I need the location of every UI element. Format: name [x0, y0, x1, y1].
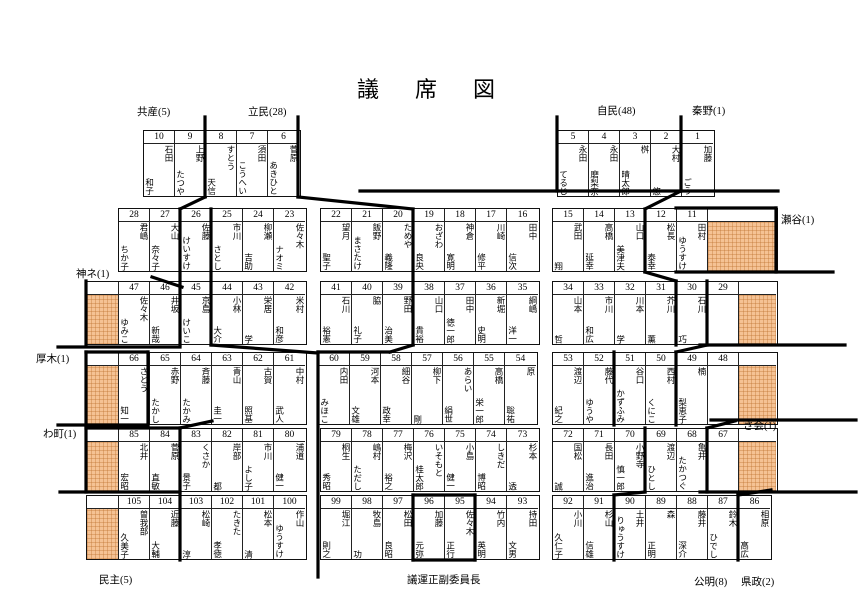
- seat-58: 58細谷政幸: [381, 353, 412, 424]
- seat-number: 30: [677, 282, 707, 295]
- member-name: 君嶋ちか子: [119, 222, 149, 271]
- seat-15: 15武田翔: [553, 209, 584, 271]
- given-name: 孝徳: [213, 541, 222, 558]
- seat-64: 64斉藤たかみ: [181, 353, 212, 424]
- given-name: 天信: [207, 178, 216, 195]
- surname: 神倉: [465, 223, 474, 240]
- surname: 杉山: [604, 510, 613, 527]
- surname: 大山: [170, 223, 179, 240]
- member-name: 野田治美: [383, 295, 413, 344]
- surname: 土井: [635, 510, 644, 527]
- member-name: 菅原直敏: [150, 442, 180, 491]
- seat-number: 37: [445, 282, 475, 295]
- seat-68: 68亀井たかつぐ: [677, 429, 708, 491]
- given-name: 史明: [477, 326, 486, 343]
- seat-59: 59河本文雄: [350, 353, 381, 424]
- member-name: 小川久仁子: [553, 509, 583, 559]
- label-giun: 議運正副委員長: [407, 572, 481, 587]
- member-name: 山口美津夫: [615, 222, 645, 271]
- seat-8: 8すとう天信: [206, 131, 237, 196]
- seat-number: 81: [243, 429, 273, 442]
- seat-number: 44: [212, 282, 242, 295]
- member-name: 市川よし子: [243, 442, 273, 491]
- surname: 杉本: [528, 443, 537, 460]
- label-kanane: 神ネ(1): [76, 266, 109, 281]
- member-name: おざわ良央: [414, 222, 444, 271]
- member-name: 山口貴裕: [414, 295, 444, 344]
- seat-number: 5: [558, 131, 588, 144]
- given-name: ごう: [683, 178, 692, 195]
- member-name: 杉本透: [507, 442, 538, 491]
- seat-number: 83: [181, 429, 211, 442]
- label-minshu: 民主(5): [99, 572, 132, 587]
- given-name: 美津夫: [616, 245, 625, 271]
- seat-78: 78嶋村ただし: [352, 429, 383, 491]
- seat-number: [739, 353, 776, 366]
- given-name: 徳一郎: [446, 318, 455, 344]
- seat-number: 69: [646, 429, 676, 442]
- seat-block-r5L: 85北井宏昭84菅原直敏83くさか景子82岸部都81市川よし子80浦道健一: [86, 428, 307, 492]
- given-name: 清: [244, 550, 253, 559]
- given-name: たかつぐ: [678, 456, 687, 490]
- member-name: 森正明: [646, 509, 676, 559]
- seat-89: 89森正明: [646, 496, 677, 559]
- member-name: 渡辺紀之: [553, 366, 583, 424]
- given-name: 礼子: [353, 326, 362, 343]
- seat-block-r1L: 10石田和子9上野たつや8すとう天信7須田こうへい6菅原あきひと: [143, 130, 301, 197]
- seat-102: 102たきた孝徳: [212, 496, 243, 559]
- seat-86: 86相原高広: [739, 496, 770, 559]
- seat-number: 85: [119, 429, 149, 442]
- surname: 野田: [403, 296, 412, 313]
- surname: 上野: [195, 145, 204, 162]
- seat-block-r2M: 22望月聖子21飯野まさたけ20ためや義隆19おざわ良央18神倉寛明17川崎修平…: [320, 208, 540, 272]
- surname: 藤井: [697, 510, 706, 527]
- seat-block-r6R: 92小川久仁子91杉山信雄90土井りゅうすけ89森正明88藤井深介87鈴木ひでし…: [552, 495, 772, 560]
- member-name: 青山圭一: [212, 366, 242, 424]
- seat-number: 33: [584, 282, 614, 295]
- hatched-area: [739, 442, 776, 491]
- surname: 永田: [609, 145, 618, 162]
- seat-number: 40: [352, 282, 382, 295]
- given-name: りゅうすけ: [616, 516, 625, 559]
- surname: しきだ: [496, 443, 505, 469]
- surname: 須田: [257, 145, 266, 162]
- hatched-area: [708, 222, 776, 271]
- surname: 石川: [341, 296, 350, 313]
- seat-95: 95佐々木正行: [445, 496, 476, 559]
- surname: 山本: [573, 296, 582, 313]
- label-sakai: さ会(1): [743, 418, 776, 433]
- surname: 浦道: [295, 443, 304, 460]
- seat-34: 34山本哲: [553, 282, 584, 344]
- label-kensei: 県政(2): [741, 574, 774, 589]
- vacant-cell: [87, 496, 119, 559]
- seat-60: 60内田みほこ: [319, 353, 350, 424]
- given-name: 健一: [275, 473, 284, 490]
- seat-number: 84: [150, 429, 180, 442]
- surname: 岸部: [232, 443, 241, 460]
- member-name: たきた孝徳: [212, 509, 242, 559]
- given-name: 晴太郎: [621, 170, 630, 196]
- seat-33: 33市川和広: [584, 282, 615, 344]
- given-name: ゆうや: [585, 398, 594, 424]
- seat-number: 53: [553, 353, 583, 366]
- seat-number: 98: [352, 496, 382, 509]
- member-name: [708, 442, 738, 491]
- given-name: 学: [616, 335, 625, 344]
- vacant-cell: [87, 353, 119, 424]
- seat-number: 22: [321, 209, 351, 222]
- seat-61: 61中村武人: [274, 353, 305, 424]
- seat-number: 79: [321, 429, 351, 442]
- surname: 加藤: [434, 510, 443, 527]
- seat-number: 97: [383, 496, 413, 509]
- seat-65: 65赤野たかし: [150, 353, 181, 424]
- seat-number: 48: [708, 353, 738, 366]
- seat-number: 90: [615, 496, 645, 509]
- member-name: 石川巧: [677, 295, 707, 344]
- surname: 細谷: [401, 367, 410, 384]
- member-name: 古賀照基: [243, 366, 273, 424]
- surname: 国松: [573, 443, 582, 460]
- seat-44: 44小林大介: [212, 282, 243, 344]
- label-komei: 公明(8): [694, 574, 727, 589]
- given-name: 正行: [446, 541, 455, 558]
- surname: 作山: [295, 510, 304, 527]
- seat-93: 93持田文男: [507, 496, 538, 559]
- seat-4: 4永田磨梨奈: [589, 131, 620, 196]
- surname: 持田: [528, 510, 537, 527]
- given-name: 久美子: [120, 533, 129, 559]
- seat-14: 14高橋延幸: [584, 209, 615, 271]
- seat-5: 5永田てるじ: [558, 131, 589, 196]
- given-name: 健一: [446, 473, 455, 490]
- member-name: [708, 366, 738, 424]
- member-name: 石川裕憲: [321, 295, 351, 344]
- surname: 脇: [372, 296, 381, 305]
- surname: 栄居: [263, 296, 272, 313]
- given-name: 桂太郎: [415, 465, 424, 491]
- seat-70: 70小野寺慎一郎: [615, 429, 646, 491]
- seat-49: 49楠梨恵子: [677, 353, 708, 424]
- hatched-area: [739, 366, 776, 424]
- surname: 渡辺: [666, 443, 675, 460]
- given-name: 磨梨奈: [590, 170, 599, 196]
- seat-block-r6M: 99堀江則之98牧島功97松田良昭96加藤元弥95佐々木正行94竹内英明93持田…: [320, 495, 540, 560]
- given-name: 秀昭: [322, 473, 331, 490]
- given-name: 高広: [740, 541, 749, 558]
- seat-103: 103松崎淳: [181, 496, 212, 559]
- given-name: 久仁子: [554, 533, 563, 559]
- seat-block-r2R: 15武田翔14高橋延幸13山口美津夫12松長泰幸11田村ゆうすけ: [552, 208, 778, 272]
- surname: 永田: [578, 145, 587, 162]
- given-name: たかみ: [182, 398, 191, 424]
- surname: 青山: [232, 367, 241, 384]
- seat-51: 51谷口かずふみ: [615, 353, 646, 424]
- hatched-area: [739, 295, 776, 344]
- given-name: 都: [213, 482, 222, 491]
- surname: 高橋: [494, 367, 503, 384]
- seat-number: 96: [414, 496, 444, 509]
- vacant-cell: [708, 209, 776, 271]
- seat-number: 34: [553, 282, 583, 295]
- given-name: 裕之: [384, 473, 393, 490]
- seat-45: 45京島けいこ: [181, 282, 212, 344]
- seat-28: 28君嶋ちか子: [119, 209, 150, 271]
- given-name: くにこ: [647, 398, 656, 424]
- given-name: あきひと: [269, 161, 278, 195]
- seat-53: 53渡辺紀之: [553, 353, 584, 424]
- seat-69: 69渡辺ひとし: [646, 429, 677, 491]
- member-name: 市川和広: [584, 295, 614, 344]
- seat-block-r4L: 66さとう知一65赤野たかし64斉藤たかみ63青山圭一62古賀照基61中村武人: [86, 352, 307, 425]
- seat-83: 83くさか景子: [181, 429, 212, 491]
- given-name: 正明: [647, 541, 656, 558]
- seat-number: 38: [414, 282, 444, 295]
- member-name: 堀江則之: [321, 509, 351, 559]
- seat-55: 55高橋栄一郎: [474, 353, 505, 424]
- seat-63: 63青山圭一: [212, 353, 243, 424]
- given-name: まさたけ: [353, 236, 362, 270]
- given-name: 修平: [477, 253, 486, 270]
- given-name: みほこ: [320, 398, 329, 424]
- surname: 北井: [139, 443, 148, 460]
- given-name: ひとし: [647, 465, 656, 491]
- surname: 桝: [640, 145, 649, 154]
- surname: 柳下: [432, 367, 441, 384]
- seat-number: 14: [584, 209, 614, 222]
- label-seya: 瀬谷(1): [781, 212, 814, 227]
- seat-number: 75: [445, 429, 475, 442]
- seat-39: 39野田治美: [383, 282, 414, 344]
- given-name: 功: [353, 550, 362, 559]
- seat-number: [87, 353, 118, 366]
- member-name: 永田磨梨奈: [589, 144, 619, 196]
- seat-number: 71: [584, 429, 614, 442]
- seat-number: 103: [181, 496, 211, 509]
- given-name: 則之: [322, 541, 331, 558]
- surname: 佐々木: [139, 296, 148, 322]
- surname: 牧島: [372, 510, 381, 527]
- seat-block-r6L: 105曽我部久美子104近藤大輔103松崎淳102たきた孝徳101松本清100作…: [86, 495, 307, 560]
- surname: 斉藤: [201, 367, 210, 384]
- hatched-area: [87, 295, 118, 344]
- surname: 森: [666, 510, 675, 519]
- given-name: 寛明: [446, 253, 455, 270]
- seat-18: 18神倉寛明: [445, 209, 476, 271]
- seat-96: 96加藤元弥: [414, 496, 445, 559]
- member-name: 作山ゆうすけ: [274, 509, 305, 559]
- seat-number: 3: [620, 131, 650, 144]
- seat-number: 76: [414, 429, 444, 442]
- given-name: 和広: [585, 326, 594, 343]
- surname: ためや: [403, 223, 412, 249]
- surname: 佐々木: [465, 510, 474, 536]
- seat-92: 92小川久仁子: [553, 496, 584, 559]
- given-name: けいこ: [182, 318, 191, 344]
- member-name: 京島けいこ: [181, 295, 211, 344]
- seat-number: 25: [212, 209, 242, 222]
- seat-number: 68: [677, 429, 707, 442]
- label-atsugi: 厚木(1): [36, 351, 69, 366]
- label-jimin: 自民(48): [597, 103, 636, 118]
- member-name: 菅原あきひと: [268, 144, 299, 196]
- given-name: 淳: [182, 550, 191, 559]
- member-name: しきだ博昭: [476, 442, 506, 491]
- given-name: ひでし: [709, 533, 718, 559]
- surname: 長田: [604, 443, 613, 460]
- seat-82: 82岸部都: [212, 429, 243, 491]
- member-name: 佐々木ゆみこ: [119, 295, 149, 344]
- seat-75: 75小島健一: [445, 429, 476, 491]
- seat-number: 95: [445, 496, 475, 509]
- seat-22: 22望月聖子: [321, 209, 352, 271]
- seat-number: 105: [119, 496, 149, 509]
- given-name: 泰幸: [647, 253, 656, 270]
- given-name: 進治: [585, 473, 594, 490]
- member-name: 高橋栄一郎: [474, 366, 504, 424]
- seat-number: 92: [553, 496, 583, 509]
- seat-number: 52: [584, 353, 614, 366]
- seat-number: 73: [507, 429, 538, 442]
- member-name: [708, 295, 738, 344]
- seat-number: [708, 209, 776, 222]
- seat-79: 79桐生秀昭: [321, 429, 352, 491]
- seat-number: 82: [212, 429, 242, 442]
- seat-number: 43: [243, 282, 273, 295]
- member-name: くさか景子: [181, 442, 211, 491]
- seat-number: 39: [383, 282, 413, 295]
- given-name: 誠: [554, 482, 563, 491]
- seat-10: 10石田和子: [144, 131, 175, 196]
- seat-57: 57柳下剛: [412, 353, 443, 424]
- member-name: 佐々木ナオミ: [274, 222, 305, 271]
- member-name: 川本学: [615, 295, 645, 344]
- seat-37: 37田中徳一郎: [445, 282, 476, 344]
- seat-number: 28: [119, 209, 149, 222]
- seat-number: 65: [150, 353, 180, 366]
- seat-104: 104近藤大輔: [150, 496, 181, 559]
- surname: 石川: [697, 296, 706, 313]
- seat-number: 104: [150, 496, 180, 509]
- given-name: 貴裕: [415, 326, 424, 343]
- member-name: 川崎修平: [476, 222, 506, 271]
- member-name: 長田進治: [584, 442, 614, 491]
- member-name: 松崎淳: [181, 509, 211, 559]
- seat-number: 26: [181, 209, 211, 222]
- member-name: 神倉寛明: [445, 222, 475, 271]
- member-name: 田中徳一郎: [445, 295, 475, 344]
- seat-number: 89: [646, 496, 676, 509]
- seat-72: 72国松誠: [553, 429, 584, 491]
- hatched-area: [87, 442, 118, 491]
- given-name: 哲: [554, 335, 563, 344]
- surname: くさか: [201, 443, 210, 469]
- seat-47: 47佐々木ゆみこ: [119, 282, 150, 344]
- seat-74: 74しきだ博昭: [476, 429, 507, 491]
- seat-number: 19: [414, 209, 444, 222]
- member-name: すとう天信: [206, 144, 236, 196]
- seat-27: 27大山奈々子: [150, 209, 181, 271]
- given-name: 博昭: [477, 473, 486, 490]
- given-name: 大輔: [151, 541, 160, 558]
- seat-23: 23佐々木ナオミ: [274, 209, 305, 271]
- surname: 川崎: [496, 223, 505, 240]
- surname: 内田: [339, 367, 348, 384]
- seat-number: 1: [682, 131, 713, 144]
- seat-3: 3桝晴太郎: [620, 131, 651, 196]
- seat-91: 91杉山信雄: [584, 496, 615, 559]
- given-name: てるじ: [559, 170, 568, 196]
- seat-number: 59: [350, 353, 380, 366]
- seat-54: 54原聡祐: [505, 353, 536, 424]
- seat-43: 43栄居学: [243, 282, 274, 344]
- member-name: 原聡祐: [505, 366, 536, 424]
- seat-block-r5M: 79桐生秀昭78嶋村ただし77梅沢裕之76いそもと桂太郎75小島健一74しきだ博…: [320, 428, 540, 492]
- seat-number: 70: [615, 429, 645, 442]
- given-name: 宏昭: [120, 473, 129, 490]
- vacant-cell: [739, 353, 776, 424]
- given-name: 良央: [415, 253, 424, 270]
- seat-block-r4M: 60内田みほこ59河本文雄58細谷政幸57柳下剛56あらい絹世55高橋栄一郎54…: [318, 352, 538, 425]
- seat-number: 10: [144, 131, 174, 144]
- surname: 山口: [434, 296, 443, 313]
- hatched-area: [87, 366, 118, 424]
- surname: すとう: [226, 145, 235, 171]
- seat-66: 66さとう知一: [119, 353, 150, 424]
- member-name: 桐生秀昭: [321, 442, 351, 491]
- surname: 谷口: [635, 367, 644, 384]
- seat-88: 88藤井深介: [677, 496, 708, 559]
- seat-87: 87鈴木ひでし: [708, 496, 739, 559]
- seating-chart-page: 議 席 図 10石田和子9上野たつや8すとう天信7須田こうへい6菅原あきひと5永…: [0, 0, 859, 607]
- member-name: 梅沢裕之: [383, 442, 413, 491]
- given-name: 薫: [647, 335, 656, 344]
- seat-number: 41: [321, 282, 351, 295]
- surname: 鈴木: [728, 510, 737, 527]
- seat-36: 36新堀史明: [476, 282, 507, 344]
- seat-number: 27: [150, 209, 180, 222]
- surname: 梅沢: [403, 443, 412, 460]
- surname: 市川: [263, 443, 272, 460]
- seat-number: 15: [553, 209, 583, 222]
- given-name: 慎一郎: [616, 465, 625, 491]
- surname: 松崎: [201, 510, 210, 527]
- seat-21: 21飯野まさたけ: [352, 209, 383, 271]
- seat-62: 62古賀照基: [243, 353, 274, 424]
- given-name: 洋一: [508, 326, 517, 343]
- seat-35: 35綱嶋洋一: [507, 282, 538, 344]
- surname: 市川: [604, 296, 613, 313]
- member-name: 加藤元弥: [414, 509, 444, 559]
- surname: 小川: [573, 510, 582, 527]
- given-name: 治美: [384, 326, 393, 343]
- surname: 田中: [528, 223, 537, 240]
- vacant-cell: [739, 282, 776, 344]
- seat-7: 7須田こうへい: [237, 131, 268, 196]
- member-name: 佐藤けいすけ: [181, 222, 211, 271]
- seat-85: 85北井宏昭: [119, 429, 150, 491]
- seat-24: 24柳瀬吉助: [243, 209, 274, 271]
- seat-25: 25市川さとし: [212, 209, 243, 271]
- surname: さとう: [139, 367, 148, 393]
- given-name: こうへい: [238, 161, 247, 195]
- member-name: 永田てるじ: [558, 144, 588, 196]
- given-name: 和彦: [275, 326, 284, 343]
- seat-number: 51: [615, 353, 645, 366]
- member-name: 新堀史明: [476, 295, 506, 344]
